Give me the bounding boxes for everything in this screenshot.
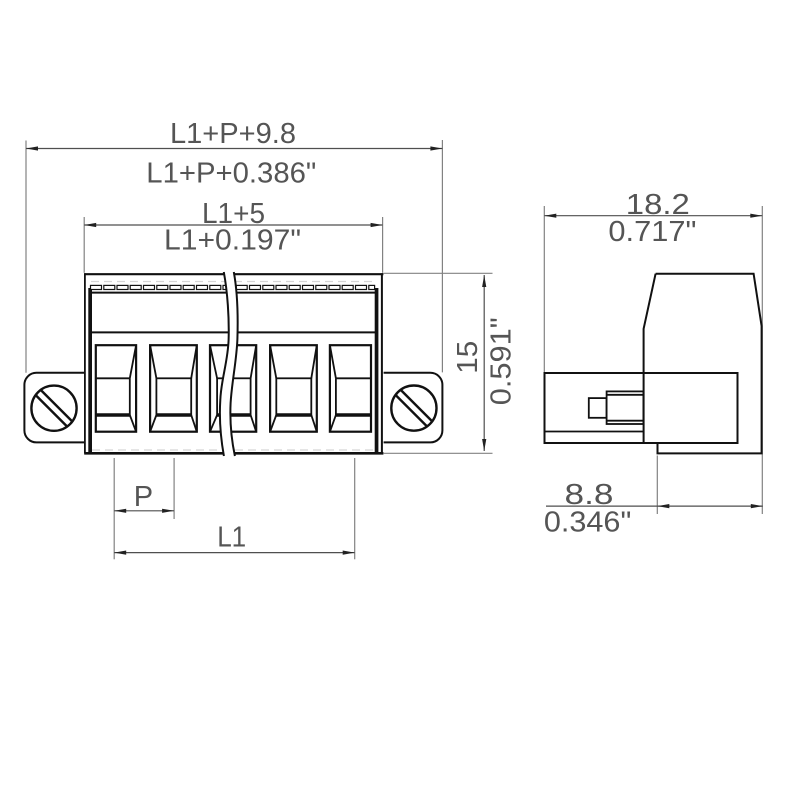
svg-text:15: 15 xyxy=(452,341,484,374)
svg-text:0.717": 0.717" xyxy=(608,216,696,248)
svg-text:P: P xyxy=(134,481,153,513)
svg-text:0.346": 0.346" xyxy=(544,506,632,538)
svg-text:L1+P+9.8: L1+P+9.8 xyxy=(170,118,296,150)
svg-text:L1: L1 xyxy=(217,521,246,553)
svg-text:L1+0.197": L1+0.197" xyxy=(164,224,301,256)
svg-text:L1+P+0.386": L1+P+0.386" xyxy=(146,158,316,190)
svg-text:0.591": 0.591" xyxy=(485,317,517,405)
